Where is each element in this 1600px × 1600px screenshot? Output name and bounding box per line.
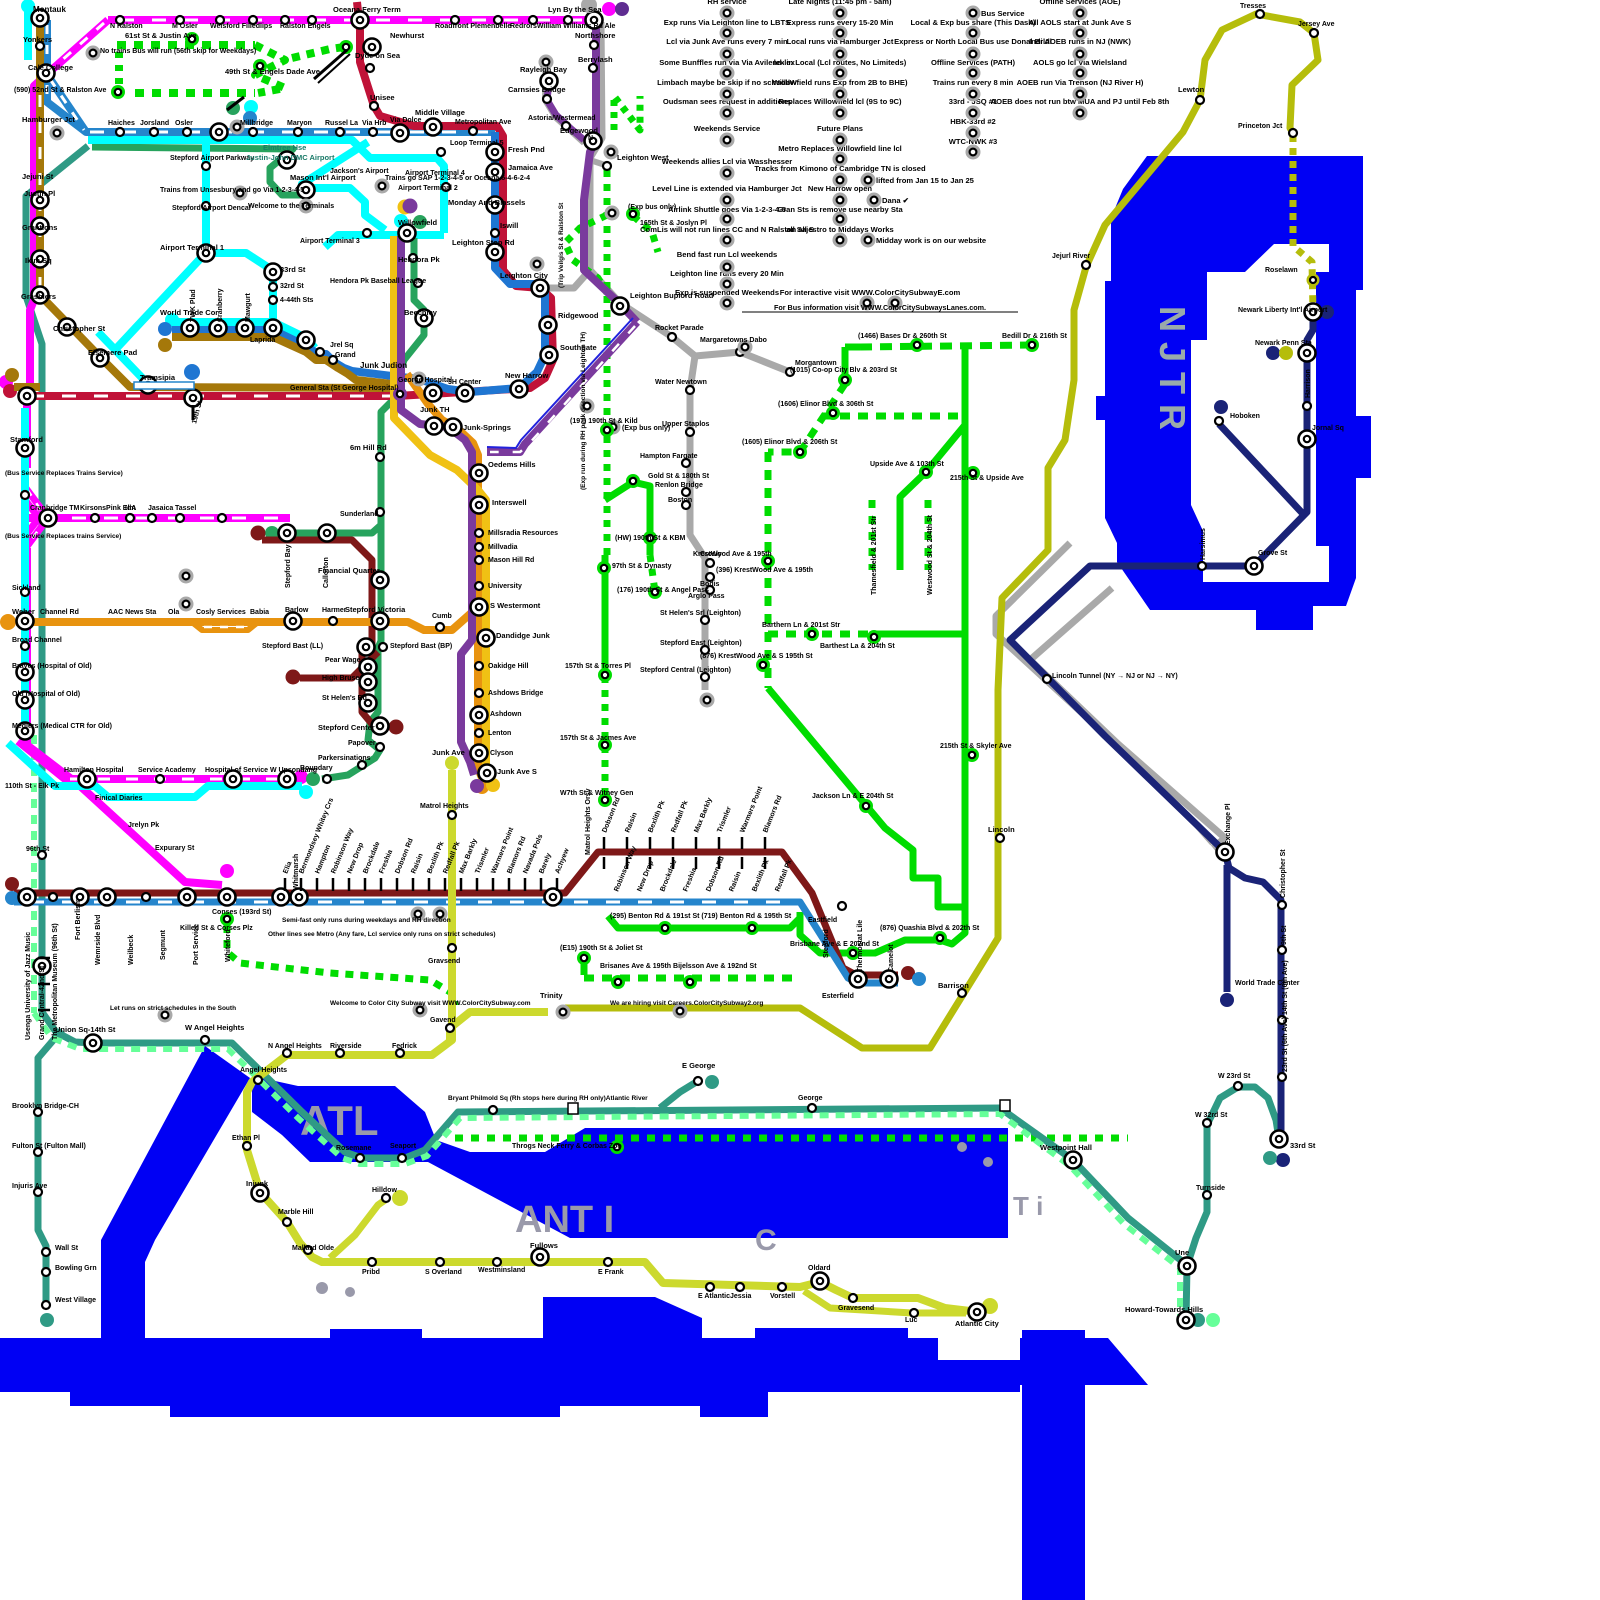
svg-text:For interactive visit WWW.Colo: For interactive visit WWW.ColorCitySubwa… (780, 288, 961, 297)
svg-text:Weekends Service: Weekends Service (694, 124, 761, 133)
svg-text:Dyde on Sea: Dyde on Sea (355, 51, 401, 60)
svg-text:Injunk: Injunk (246, 1179, 269, 1188)
svg-text:Junk Ave S: Junk Ave S (497, 767, 537, 776)
svg-text:Semi-fast only runs during wee: Semi-fast only runs during weekdays and … (282, 917, 451, 924)
svg-text:Fort Berlism: Fort Berlism (75, 899, 82, 940)
svg-text:The Metropolitan Museum (96th: The Metropolitan Museum (96th St) (52, 923, 59, 1040)
svg-text:Broad Channel: Broad Channel (12, 637, 62, 644)
svg-text:Elsemere Pad: Elsemere Pad (88, 348, 138, 357)
svg-text:E George: E George (682, 1061, 715, 1070)
svg-text:Loop Terminal 5: Loop Terminal 5 (450, 140, 504, 147)
svg-text:Southgate: Southgate (560, 343, 597, 352)
svg-text:Brisanes Ave & 195th Bijelsson: Brisanes Ave & 195th Bijelsson Ave & 192… (600, 963, 757, 970)
svg-text:Cumb: Cumb (432, 613, 452, 620)
svg-text:Junk Ave: Junk Ave (432, 748, 465, 757)
svg-text:Eastfield: Eastfield (808, 917, 837, 924)
svg-text:Hamburger Jct: Hamburger Jct (22, 115, 75, 124)
svg-text:33rd St: 33rd St (1290, 1141, 1316, 1150)
svg-text:Tramsipia: Tramsipia (140, 373, 176, 382)
svg-text:Mallard Olde: Mallard Olde (292, 1245, 334, 1252)
svg-text:33rd St: 33rd St (280, 265, 306, 274)
svg-text:Airport Terminal 1: Airport Terminal 1 (160, 243, 224, 252)
svg-text:110th St - Elk Pk: 110th St - Elk Pk (5, 783, 59, 790)
svg-text:Lyn By the Sea: Lyn By the Sea (548, 5, 602, 14)
svg-text:Gavend: Gavend (430, 1017, 456, 1024)
svg-text:Pribd: Pribd (362, 1269, 380, 1276)
svg-text:(Bus Service Replaces Trains S: (Bus Service Replaces Trains Service) (5, 470, 123, 477)
svg-text:Cranbridge TM: Cranbridge TM (30, 505, 80, 512)
svg-text:Carnsies Bridge: Carnsies Bridge (508, 85, 566, 94)
svg-text:Lincoln Tunnel (NY → NJ or NJ: Lincoln Tunnel (NY → NJ or NJ → NY) (1052, 673, 1178, 680)
svg-text:Stepford Airport Parkway: Stepford Airport Parkway (170, 155, 254, 162)
svg-text:Thamesfield & 201st Str: Thamesfield & 201st Str (871, 515, 878, 595)
svg-text:Junk TH: Junk TH (420, 405, 450, 414)
svg-text:IdA: IdA (125, 505, 136, 512)
svg-text:Christopher St: Christopher St (1280, 849, 1287, 898)
svg-text:Stepford Victoria: Stepford Victoria (345, 605, 406, 614)
svg-text:215th St & Skyler Ave: 215th St & Skyler Ave (940, 743, 1012, 750)
svg-text:Injuris Ave: Injuris Ave (12, 1183, 47, 1190)
svg-text:Sickland: Sickland (12, 585, 41, 592)
svg-text:(176) 190th St & Angel Pass: (176) 190th St & Angel Pass (617, 587, 709, 594)
svg-text:Angel Heights: Angel Heights (240, 1067, 287, 1074)
svg-text:Westminsland: Westminsland (478, 1267, 525, 1274)
svg-text:(Exp run during RH peak direct: (Exp run during RH peak direction via Le… (580, 332, 587, 490)
svg-text:Osler: Osler (175, 120, 193, 127)
svg-text:Sunderland: Sunderland (340, 511, 379, 518)
svg-text:Stepford Central (Leighton): Stepford Central (Leighton) (640, 667, 731, 674)
svg-text:Killed St & Corses Plz: Killed St & Corses Plz (180, 925, 253, 932)
svg-text:Clyson: Clyson (490, 750, 513, 757)
svg-text:Millbridge: Millbridge (240, 120, 273, 127)
svg-text:Grove St: Grove St (1258, 550, 1288, 557)
svg-text:Haiches: Haiches (108, 120, 135, 127)
svg-text:61st St & Justin Ave: 61st St & Justin Ave (125, 31, 197, 40)
svg-text:(590) 52nd St & Ralston Ave: (590) 52nd St & Ralston Ave (14, 87, 107, 94)
svg-text:Throgs Neck Ferry & Corbas Zoo: Throgs Neck Ferry & Corbas Zoo (512, 1143, 622, 1150)
svg-text:Trinity: Trinity (540, 991, 563, 1000)
svg-text:Seaport: Seaport (390, 1143, 417, 1150)
svg-text:Russel La: Russel La (325, 120, 358, 127)
svg-text:Oceana Ferry Term: Oceana Ferry Term (333, 5, 401, 14)
svg-text:TWK Plad: TWK Plad (190, 289, 197, 322)
svg-text:4-44th Sts: 4-44th Sts (280, 297, 314, 304)
svg-text:ANT I: ANT I (515, 1199, 614, 1241)
svg-text:N Angel Heights: N Angel Heights (268, 1043, 322, 1050)
svg-text:Cranberry: Cranberry (217, 288, 224, 322)
svg-text:Rocket Parade: Rocket Parade (655, 325, 704, 332)
svg-text:No trains Bus will run (56th s: No trains Bus will run (56th skip for We… (100, 48, 256, 55)
svg-text:Stepford Bay: Stepford Bay (285, 544, 292, 588)
svg-text:Beechley: Beechley (404, 308, 438, 317)
svg-text:Bowling Grn: Bowling Grn (55, 1265, 97, 1272)
svg-text:Gravesend: Gravesend (838, 1305, 874, 1312)
svg-text:Papover: Papover (348, 740, 376, 747)
svg-text:Stepford Airport Dencal: Stepford Airport Dencal (172, 205, 251, 212)
svg-text:Edgewood: Edgewood (560, 126, 598, 135)
svg-text:Lenton: Lenton (488, 730, 511, 737)
svg-text:Junk-Springs: Junk-Springs (463, 423, 511, 432)
svg-text:97th St & Dynasty: 97th St & Dynasty (612, 563, 672, 570)
svg-text:(876) KrestWood Ave & S 195th: (876) KrestWood Ave & S 195th St (700, 653, 813, 660)
svg-text:Gravsend: Gravsend (428, 958, 460, 965)
svg-text:6m Hill Rd: 6m Hill Rd (350, 443, 387, 452)
svg-text:Bedill Dr & 216th St: Bedill Dr & 216th St (1002, 333, 1068, 340)
svg-text:St Helen's Rd: St Helen's Rd (322, 695, 367, 702)
svg-text:Bryant Philmold Sq (Rh stops h: Bryant Philmold Sq (Rh stops here during… (448, 1095, 648, 1102)
svg-text:Newark Penn Sta: Newark Penn Sta (1255, 340, 1312, 347)
svg-text:Parkersinations: Parkersinations (318, 755, 371, 762)
svg-text:Esterfield: Esterfield (822, 993, 854, 1000)
svg-text:Exchange Pl: Exchange Pl (1225, 803, 1232, 845)
svg-text:M Osler: M Osler (172, 23, 198, 30)
svg-text:157th St & Torres Pl: 157th St & Torres Pl (565, 663, 631, 670)
svg-text:Bus Service: Bus Service (981, 9, 1024, 18)
svg-text:High Bruse: High Bruse (322, 675, 359, 682)
svg-text:49th St & Engels Dade Ave: 49th St & Engels Dade Ave (225, 67, 320, 76)
svg-text:Old (Hospital of Old): Old (Hospital of Old) (12, 691, 80, 698)
svg-text:Elmtree Hse: Elmtree Hse (263, 143, 306, 152)
svg-text:Barthest La & 204th St: Barthest La & 204th St (820, 643, 895, 650)
svg-text:Ashdown: Ashdown (490, 711, 522, 718)
svg-text:Brisbane Ave & E 202nd St: Brisbane Ave & E 202nd St (790, 941, 880, 948)
svg-text:Late Nights (11:45 pm - 5am): Late Nights (11:45 pm - 5am) (789, 0, 892, 6)
svg-text:Fresh Pnd: Fresh Pnd (508, 145, 545, 154)
svg-text:Une: Une (1175, 1248, 1189, 1257)
svg-text:Willowfield: Willowfield (398, 218, 438, 227)
svg-text:Jessia: Jessia (730, 1293, 752, 1300)
svg-text:Hampton Fargate: Hampton Fargate (640, 453, 698, 460)
svg-text:Whitmarsh: Whitmarsh (293, 854, 300, 890)
svg-text:Thermostat Lile: Thermostat Lile (857, 920, 864, 972)
svg-text:University: University (488, 583, 522, 590)
svg-text:Christopher St: Christopher St (53, 324, 106, 333)
svg-text:Cosly Services: Cosly Services (196, 609, 246, 616)
svg-text:Ethan Pl: Ethan Pl (232, 1135, 260, 1142)
svg-text:Stepford Bast (LL): Stepford Bast (LL) (262, 643, 323, 650)
svg-text:Level Line is extended via Ham: Level Line is extended via Hamburger Jct (652, 184, 802, 193)
svg-text:Segmunt: Segmunt (160, 929, 167, 960)
svg-text:Jejuni St: Jejuni St (22, 172, 54, 181)
svg-text:Airport Terminal 3: Airport Terminal 3 (300, 238, 360, 245)
svg-text:Justin-John DMC Airport: Justin-John DMC Airport (246, 153, 335, 162)
svg-text:Water Newtown: Water Newtown (655, 379, 707, 386)
svg-text:Brooklyn Bridge-CH: Brooklyn Bridge-CH (12, 1103, 79, 1110)
svg-text:Babia: Babia (250, 609, 269, 616)
svg-text:Stepford Bast (BP): Stepford Bast (BP) (390, 643, 452, 650)
svg-text:(1606) Elinor Blvd & 306th St: (1606) Elinor Blvd & 306th St (778, 401, 874, 408)
svg-text:W7th St & Witney Gen: W7th St & Witney Gen (560, 790, 633, 797)
svg-text:Mawgurt: Mawgurt (245, 293, 252, 322)
svg-text:Other lines see Metro (Any far: Other lines see Metro (Any fare, Lcl ser… (268, 931, 496, 938)
svg-text:Dana ✔: Dana ✔ (882, 196, 909, 205)
svg-text:Stepford East (Leighton): Stepford East (Leighton) (660, 640, 742, 647)
svg-text:Harsimus: Harsimus (1200, 528, 1207, 560)
svg-text:RH service: RH service (707, 0, 746, 6)
svg-text:Jamaica Ave: Jamaica Ave (508, 163, 553, 172)
svg-text:Airport Terminal 4: Airport Terminal 4 (405, 170, 465, 177)
svg-text:Grand: Grand (335, 352, 356, 359)
svg-text:Princeton Jct: Princeton Jct (1238, 123, 1283, 130)
svg-text:Dandidge Junk: Dandidge Junk (496, 631, 551, 640)
svg-text:157th St & Jacmes Ave: 157th St & Jacmes Ave (560, 735, 636, 742)
svg-text:Welcome to Color City Subway v: Welcome to Color City Subway visit WWW.C… (330, 1000, 531, 1007)
svg-text:Monday And Blassels: Monday And Blassels (448, 198, 525, 207)
svg-text:(1466) Bases Dr & 260th St: (1466) Bases Dr & 260th St (858, 333, 947, 340)
svg-text:Boston: Boston (668, 497, 692, 504)
svg-text:Grand Central-42nd St: Grand Central-42nd St (39, 965, 46, 1040)
svg-text:Fullows: Fullows (530, 1241, 558, 1250)
svg-text:Arglo Pass: Arglo Pass (688, 593, 725, 600)
svg-text:lifted from Jan 15 to Jan 25: lifted from Jan 15 to Jan 25 (876, 176, 975, 185)
svg-text:3H Center: 3H Center (448, 379, 481, 386)
svg-text:Renlon Bridge: Renlon Bridge (655, 482, 703, 489)
svg-text:We are hiring visit Careers.Co: We are hiring visit Careers.ColorCitySub… (610, 1000, 763, 1007)
svg-text:Morgantown: Morgantown (795, 360, 837, 367)
svg-text:Leighton Stop Rd: Leighton Stop Rd (452, 238, 515, 247)
svg-text:(E15) 190th St & Joliet St: (E15) 190th St & Joliet St (560, 945, 643, 952)
svg-text:Jorsland: Jorsland (140, 120, 169, 127)
svg-text:T i: T i (1013, 1191, 1043, 1221)
svg-text:Iswill: Iswill (500, 221, 518, 230)
svg-text:Let runs on strict schedules i: Let runs on strict schedules in the Sout… (110, 1005, 236, 1012)
svg-text:Tassel: Tassel (175, 505, 196, 512)
svg-text:23rd St (6th Ave): 23rd St (6th Ave) (1282, 1017, 1289, 1072)
svg-text:Atlantic City: Atlantic City (955, 1319, 1000, 1328)
svg-text:(1015) Co-op City Blv & 203rd: (1015) Co-op City Blv & 203rd St (790, 367, 898, 374)
svg-text:Welcome to the Terminals: Welcome to the Terminals (248, 203, 334, 210)
svg-text:Barthern Ln & 201st Str: Barthern Ln & 201st Str (762, 622, 840, 629)
svg-text:George: George (798, 1095, 823, 1102)
svg-text:Ola: Ola (168, 609, 179, 616)
svg-text:S Westermont: S Westermont (490, 601, 541, 610)
svg-text:Trains from Unsesbury and go V: Trains from Unsesbury and go Via 1-2-3-4… (160, 187, 304, 194)
svg-text:(Exp bus only): (Exp bus only) (622, 425, 670, 432)
svg-text:Oakidge Hill: Oakidge Hill (488, 663, 529, 670)
svg-text:West Village: West Village (55, 1297, 96, 1304)
svg-text:Ikim Sq: Ikim Sq (25, 256, 52, 265)
svg-text:Oldard: Oldard (808, 1265, 831, 1272)
svg-text:(Bus Service Replaces trains S: (Bus Service Replaces trains Service) (5, 533, 121, 540)
svg-text:Jrelyn Pk: Jrelyn Pk (128, 822, 159, 829)
svg-text:Service Academy: Service Academy (138, 767, 196, 774)
svg-text:(1605) Elinor Blvd & 206th St: (1605) Elinor Blvd & 206th St (742, 439, 838, 446)
svg-text:Astoria/Westermead: Astoria/Westermead (528, 115, 596, 122)
svg-text:Montauk: Montauk (33, 5, 66, 14)
svg-text:New Harrow: New Harrow (505, 371, 549, 380)
svg-text:Jrel Sq: Jrel Sq (330, 342, 353, 349)
svg-text:Turnside: Turnside (1196, 1185, 1225, 1192)
svg-text:RedrorsWilliam Williams Rd Ale: RedrorsWilliam Williams Rd Ale (510, 23, 616, 30)
svg-text:Fedrick: Fedrick (392, 1043, 417, 1050)
svg-text:Callorton: Callorton (323, 557, 330, 588)
svg-text:C: C (755, 1224, 777, 1257)
svg-text:Unisee: Unisee (370, 93, 395, 102)
svg-text:Middle Village: Middle Village (415, 108, 465, 117)
svg-text:Jackson Ln & E 204th St: Jackson Ln & E 204th St (812, 793, 894, 800)
svg-text:Wall St: Wall St (55, 1245, 79, 1252)
svg-text:Laprida: Laprida (250, 337, 275, 344)
svg-text:Pear Wage: Pear Wage (325, 657, 361, 664)
svg-text:Brayes (Hospital of Old): Brayes (Hospital of Old) (12, 663, 92, 670)
svg-text:Hamilton Hospital: Hamilton Hospital (64, 767, 124, 774)
svg-text:Lewton: Lewton (1178, 85, 1205, 94)
svg-text:W 32rd St: W 32rd St (1195, 1112, 1228, 1119)
svg-text:Stamford: Stamford (10, 435, 43, 444)
svg-text:Justin Pl: Justin Pl (24, 189, 55, 198)
svg-text:Welsford Filledlips: Welsford Filledlips (210, 23, 272, 30)
svg-text:Hoboken: Hoboken (1230, 413, 1260, 420)
svg-text:Berrylash: Berrylash (578, 55, 613, 64)
svg-text:For Bus information visit WWW.: For Bus information visit WWW.ColorCityS… (774, 303, 986, 312)
svg-text:General Sta (St George Hospita: General Sta (St George Hospital) (290, 385, 399, 392)
svg-text:(Trip Veilgis St & Ralston St: (Trip Veilgis St & Ralston St (558, 202, 565, 288)
svg-text:Upside Ave & 103th St: Upside Ave & 103th St (870, 461, 944, 468)
svg-text:Metropolitan Ave: Metropolitan Ave (455, 119, 511, 126)
svg-text:Rayleigh Bay: Rayleigh Bay (520, 65, 568, 74)
svg-text:Whiteford: Whiteford (225, 929, 232, 962)
svg-text:Cale College: Cale College (28, 63, 73, 72)
svg-text:96th St: 96th St (26, 846, 50, 853)
svg-text:St Helen's Srl (Leighton): St Helen's Srl (Leighton) (660, 610, 741, 617)
svg-text:Jasaica: Jasaica (148, 505, 173, 512)
svg-text:Fulton St (Fulton Mall): Fulton St (Fulton Mall) (12, 1143, 86, 1150)
svg-text:Grashiers: Grashiers (21, 292, 56, 301)
svg-text:Hendora Pk: Hendora Pk (398, 255, 441, 264)
svg-text:Gold St & 180th St: Gold St & 180th St (648, 473, 710, 480)
svg-text:KrestWood Ave & 195th: KrestWood Ave & 195th (693, 551, 772, 558)
svg-text:Hilldow: Hilldow (372, 1187, 397, 1194)
svg-text:Jersey Ave: Jersey Ave (1298, 21, 1335, 28)
svg-text:S Overland: S Overland (425, 1269, 462, 1276)
svg-text:George Hospital: George Hospital (398, 377, 452, 384)
svg-text:Riverside: Riverside (330, 1043, 362, 1050)
svg-text:World Trade Center: World Trade Center (1235, 980, 1300, 987)
svg-text:32rd St: 32rd St (280, 283, 304, 290)
svg-text:N Ralston: N Ralston (110, 23, 143, 30)
svg-text:Future Plans: Future Plans (817, 124, 863, 133)
svg-text:Ashdows Bridge: Ashdows Bridge (488, 690, 543, 697)
svg-text:Hendora Pk Baseball League: Hendora Pk Baseball League (330, 278, 426, 285)
svg-text:Harrison: Harrison (1305, 369, 1312, 398)
svg-text:Stepford Center: Stepford Center (318, 723, 375, 732)
svg-text:Boundary: Boundary (300, 765, 333, 772)
svg-text:Finical Diaries: Finical Diaries (95, 795, 143, 802)
svg-text:Westwood St & 204th St: Westwood St & 204th St (927, 514, 934, 595)
svg-text:Via Hrb: Via Hrb (362, 120, 386, 127)
svg-text:Newark Liberty Int'l Airport: Newark Liberty Int'l Airport (1238, 307, 1328, 314)
svg-text:W Angel Heights: W Angel Heights (185, 1023, 244, 1032)
svg-text:Lincoln: Lincoln (988, 825, 1015, 834)
svg-text:Camelot: Camelot (888, 944, 895, 972)
svg-text:Jornal Sq: Jornal Sq (1312, 425, 1344, 432)
svg-text:Yonkers: Yonkers (23, 35, 52, 44)
svg-text:Mason Int'l Airport: Mason Int'l Airport (290, 173, 356, 182)
svg-text:Weber: Weber (12, 607, 35, 616)
svg-text:Roselawn: Roselawn (1265, 267, 1298, 274)
svg-text:Ralston Engels: Ralston Engels (280, 23, 331, 30)
svg-text:Tresses: Tresses (1240, 3, 1266, 10)
svg-text:N J T R: N J T R (1152, 306, 1193, 430)
svg-text:Matrol Heights Orsv: Matrol Heights Orsv (585, 788, 592, 855)
svg-text:215th St & Upside Ave: 215th St & Upside Ave (950, 475, 1024, 482)
svg-text:Conses (193rd St): Conses (193rd St) (212, 909, 272, 916)
svg-text:Medlers (Medical CTR for Old): Medlers (Medical CTR for Old) (12, 723, 112, 730)
svg-text:E Atlantic: E Atlantic (698, 1293, 730, 1300)
svg-text:Westpoint Hall: Westpoint Hall (1040, 1143, 1092, 1152)
svg-text:E Frank: E Frank (598, 1269, 624, 1276)
svg-text:Margaretowns Dabo: Margaretowns Dabo (700, 337, 767, 344)
svg-text:Bend fast run Lcl weekends: Bend fast run Lcl weekends (677, 250, 777, 259)
svg-text:Northshore: Northshore (575, 31, 615, 40)
svg-text:Interswell: Interswell (492, 498, 527, 507)
svg-text:Leighton City: Leighton City (500, 271, 549, 280)
svg-text:14th St (6th Ave): 14th St (6th Ave) (1282, 960, 1289, 1015)
svg-text:Vorstell: Vorstell (770, 1293, 795, 1300)
svg-text:Stepford: Stepford (823, 929, 830, 958)
svg-text:Millsradia Resources: Millsradia Resources (488, 530, 558, 537)
svg-text:W 23rd St: W 23rd St (1218, 1073, 1251, 1080)
svg-text:Weilbeck: Weilbeck (128, 935, 135, 965)
svg-text:(HW) 190th St & KBM: (HW) 190th St & KBM (615, 535, 686, 542)
svg-text:Union Sq-14th St: Union Sq-14th St (55, 1025, 116, 1034)
svg-text:Mason Hill Rd: Mason Hill Rd (488, 557, 534, 564)
svg-text:Newhurst: Newhurst (390, 31, 425, 40)
svg-text:Barlow: Barlow (285, 607, 309, 614)
svg-text:Channel Rd: Channel Rd (40, 609, 79, 616)
svg-text:Millvadia: Millvadia (488, 544, 518, 551)
svg-text:Roadfront Plemenbelle: Roadfront Plemenbelle (435, 23, 511, 30)
svg-text:Maryon: Maryon (287, 120, 312, 127)
svg-text:Wemrside Blvd: Wemrside Blvd (95, 915, 102, 965)
svg-text:(396) KrestWood Ave & 195th: (396) KrestWood Ave & 195th (716, 567, 813, 574)
svg-text:N: N (588, 135, 593, 142)
svg-text:Oedems Hills: Oedems Hills (488, 460, 536, 469)
svg-text:Rosemane: Rosemane (336, 1145, 372, 1152)
svg-text:Luc: Luc (905, 1317, 918, 1324)
svg-text:(876) Quashia Blvd & 202th St: (876) Quashia Blvd & 202th St (880, 925, 980, 932)
svg-text:Harmer: Harmer (322, 607, 347, 614)
svg-text:Howard-Towards Hills: Howard-Towards Hills (1125, 1305, 1203, 1314)
svg-text:Barrison: Barrison (938, 981, 969, 990)
svg-text:Expurary St: Expurary St (155, 845, 195, 852)
svg-text:(295) Benton Rd & 191st St (71: (295) Benton Rd & 191st St (719) Benton … (610, 913, 792, 920)
svg-text:Offline Services (AOE): Offline Services (AOE) (1039, 0, 1120, 6)
svg-text:Matrol Heights: Matrol Heights (420, 803, 469, 810)
svg-text:Airport Terminal 2: Airport Terminal 2 (398, 185, 458, 192)
svg-text:Usenga University of Jazz Musi: Usenga University of Jazz Music (25, 932, 32, 1040)
svg-text:Grantions: Grantions (22, 223, 57, 232)
svg-text:9th St: 9th St (1281, 925, 1288, 945)
svg-text:AAC News Sta: AAC News Sta (108, 609, 156, 616)
svg-text:Via Dolce: Via Dolce (390, 117, 421, 124)
svg-text:Midday work is on our website: Midday work is on our website (876, 236, 986, 245)
svg-text:Junk Judion: Junk Judion (360, 361, 407, 370)
svg-text:Port Service: Port Service (193, 924, 200, 965)
svg-text:Marble Hill: Marble Hill (278, 1209, 313, 1216)
svg-text:Ridgewood: Ridgewood (558, 311, 599, 320)
svg-text:Jejurl River: Jejurl River (1052, 253, 1090, 260)
